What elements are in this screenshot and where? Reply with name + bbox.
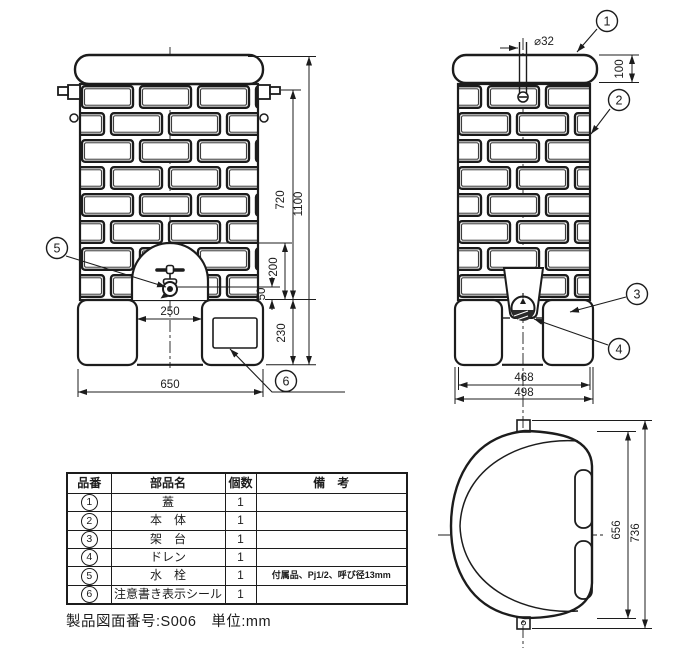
quantity-cell: 1	[225, 567, 256, 585]
quantity-cell: 1	[225, 585, 256, 604]
header-part-name: 部品名	[111, 473, 225, 494]
dim-650: 650	[160, 379, 179, 391]
dim-1100: 1100	[293, 192, 305, 217]
remark-cell	[256, 530, 407, 548]
dim-200: 200	[268, 257, 280, 276]
top-view	[438, 420, 603, 629]
part-number-cell: 4	[67, 548, 111, 566]
technical-drawing-page: 720 1100 200 50 230 250 650	[0, 0, 700, 651]
part-number-cell: 3	[67, 530, 111, 548]
part-number-cell: 1	[67, 494, 111, 512]
knob-right-icon	[260, 114, 268, 122]
table-row: 5 水 栓 1 付属品、Pj1/2、呼び径13mm	[67, 567, 407, 585]
part-number-cell: 5	[67, 567, 111, 585]
dim-468: 468	[514, 372, 533, 384]
balloon-1-number: 1	[604, 15, 611, 29]
dim-656: 656	[611, 520, 623, 539]
circled-number: 1	[81, 494, 98, 511]
dim-230: 230	[276, 323, 288, 342]
table-row: 1 蓋 1	[67, 494, 407, 512]
balloon-2-number: 2	[616, 94, 623, 108]
header-remarks: 備 考	[256, 473, 407, 494]
balloon-6-number: 6	[283, 375, 290, 389]
dim-720: 720	[275, 190, 287, 209]
part-number-cell: 2	[67, 512, 111, 530]
parts-table: 品番 部品名 個数 備 考 1 蓋 1 2 本 体 1 3 架 台 1 4 ドレ…	[66, 472, 408, 605]
header-part-number: 品番	[67, 473, 111, 494]
lid-side	[453, 55, 597, 83]
part-name-cell: 架 台	[111, 530, 225, 548]
part-name-cell: 蓋	[111, 494, 225, 512]
table-row: 2 本 体 1	[67, 512, 407, 530]
dim-100: 100	[614, 59, 626, 78]
remark-cell: 付属品、Pj1/2、呼び径13mm	[256, 567, 407, 585]
part-name-cell: 水 栓	[111, 567, 225, 585]
overflow-socket-right	[258, 85, 280, 99]
drawing-number-and-unit: 製品図面番号:S006 単位:mm	[66, 610, 271, 631]
part-name-cell: 本 体	[111, 512, 225, 530]
lid-front	[75, 55, 263, 84]
remark-cell	[256, 494, 407, 512]
quantity-cell: 1	[225, 548, 256, 566]
part-name-cell: ドレン	[111, 548, 225, 566]
quantity-cell: 1	[225, 494, 256, 512]
circled-number: 5	[81, 568, 98, 585]
table-row: 4 ドレン 1	[67, 548, 407, 566]
caution-label-plate	[213, 318, 257, 348]
quantity-cell: 1	[225, 530, 256, 548]
circled-number: 3	[81, 531, 98, 548]
pipe-fitting-icon	[518, 92, 528, 102]
top-tab-hole	[522, 621, 526, 625]
balloon-4-number: 4	[616, 343, 623, 357]
dim-250: 250	[160, 306, 179, 318]
top-dimension-labels: 656 736	[611, 520, 642, 542]
front-view	[58, 47, 280, 368]
circled-number: 4	[81, 549, 98, 566]
table-row: 6 注意書き表示シール 1	[67, 585, 407, 604]
part-name-cell: 注意書き表示シール	[111, 585, 225, 604]
balloon-5-number: 5	[54, 242, 61, 256]
circled-number: 6	[81, 586, 98, 603]
remark-cell	[256, 548, 407, 566]
dim-pipe-dia: ⌀32	[534, 36, 554, 48]
part-number-cell: 6	[67, 585, 111, 604]
circled-number: 2	[81, 513, 98, 530]
balloon-3-number: 3	[634, 288, 641, 302]
dim-50: 50	[256, 288, 268, 301]
table-row: 3 架 台 1	[67, 530, 407, 548]
header-quantity: 個数	[225, 473, 256, 494]
remark-cell	[256, 512, 407, 530]
top-outline	[451, 431, 592, 618]
dim-498: 498	[514, 387, 533, 399]
remark-cell	[256, 585, 407, 604]
quantity-cell: 1	[225, 512, 256, 530]
parts-table-header-row: 品番 部品名 個数 備 考	[67, 473, 407, 494]
overflow-socket-left	[58, 85, 80, 99]
knob-left-icon	[70, 114, 78, 122]
dim-736: 736	[630, 523, 642, 542]
